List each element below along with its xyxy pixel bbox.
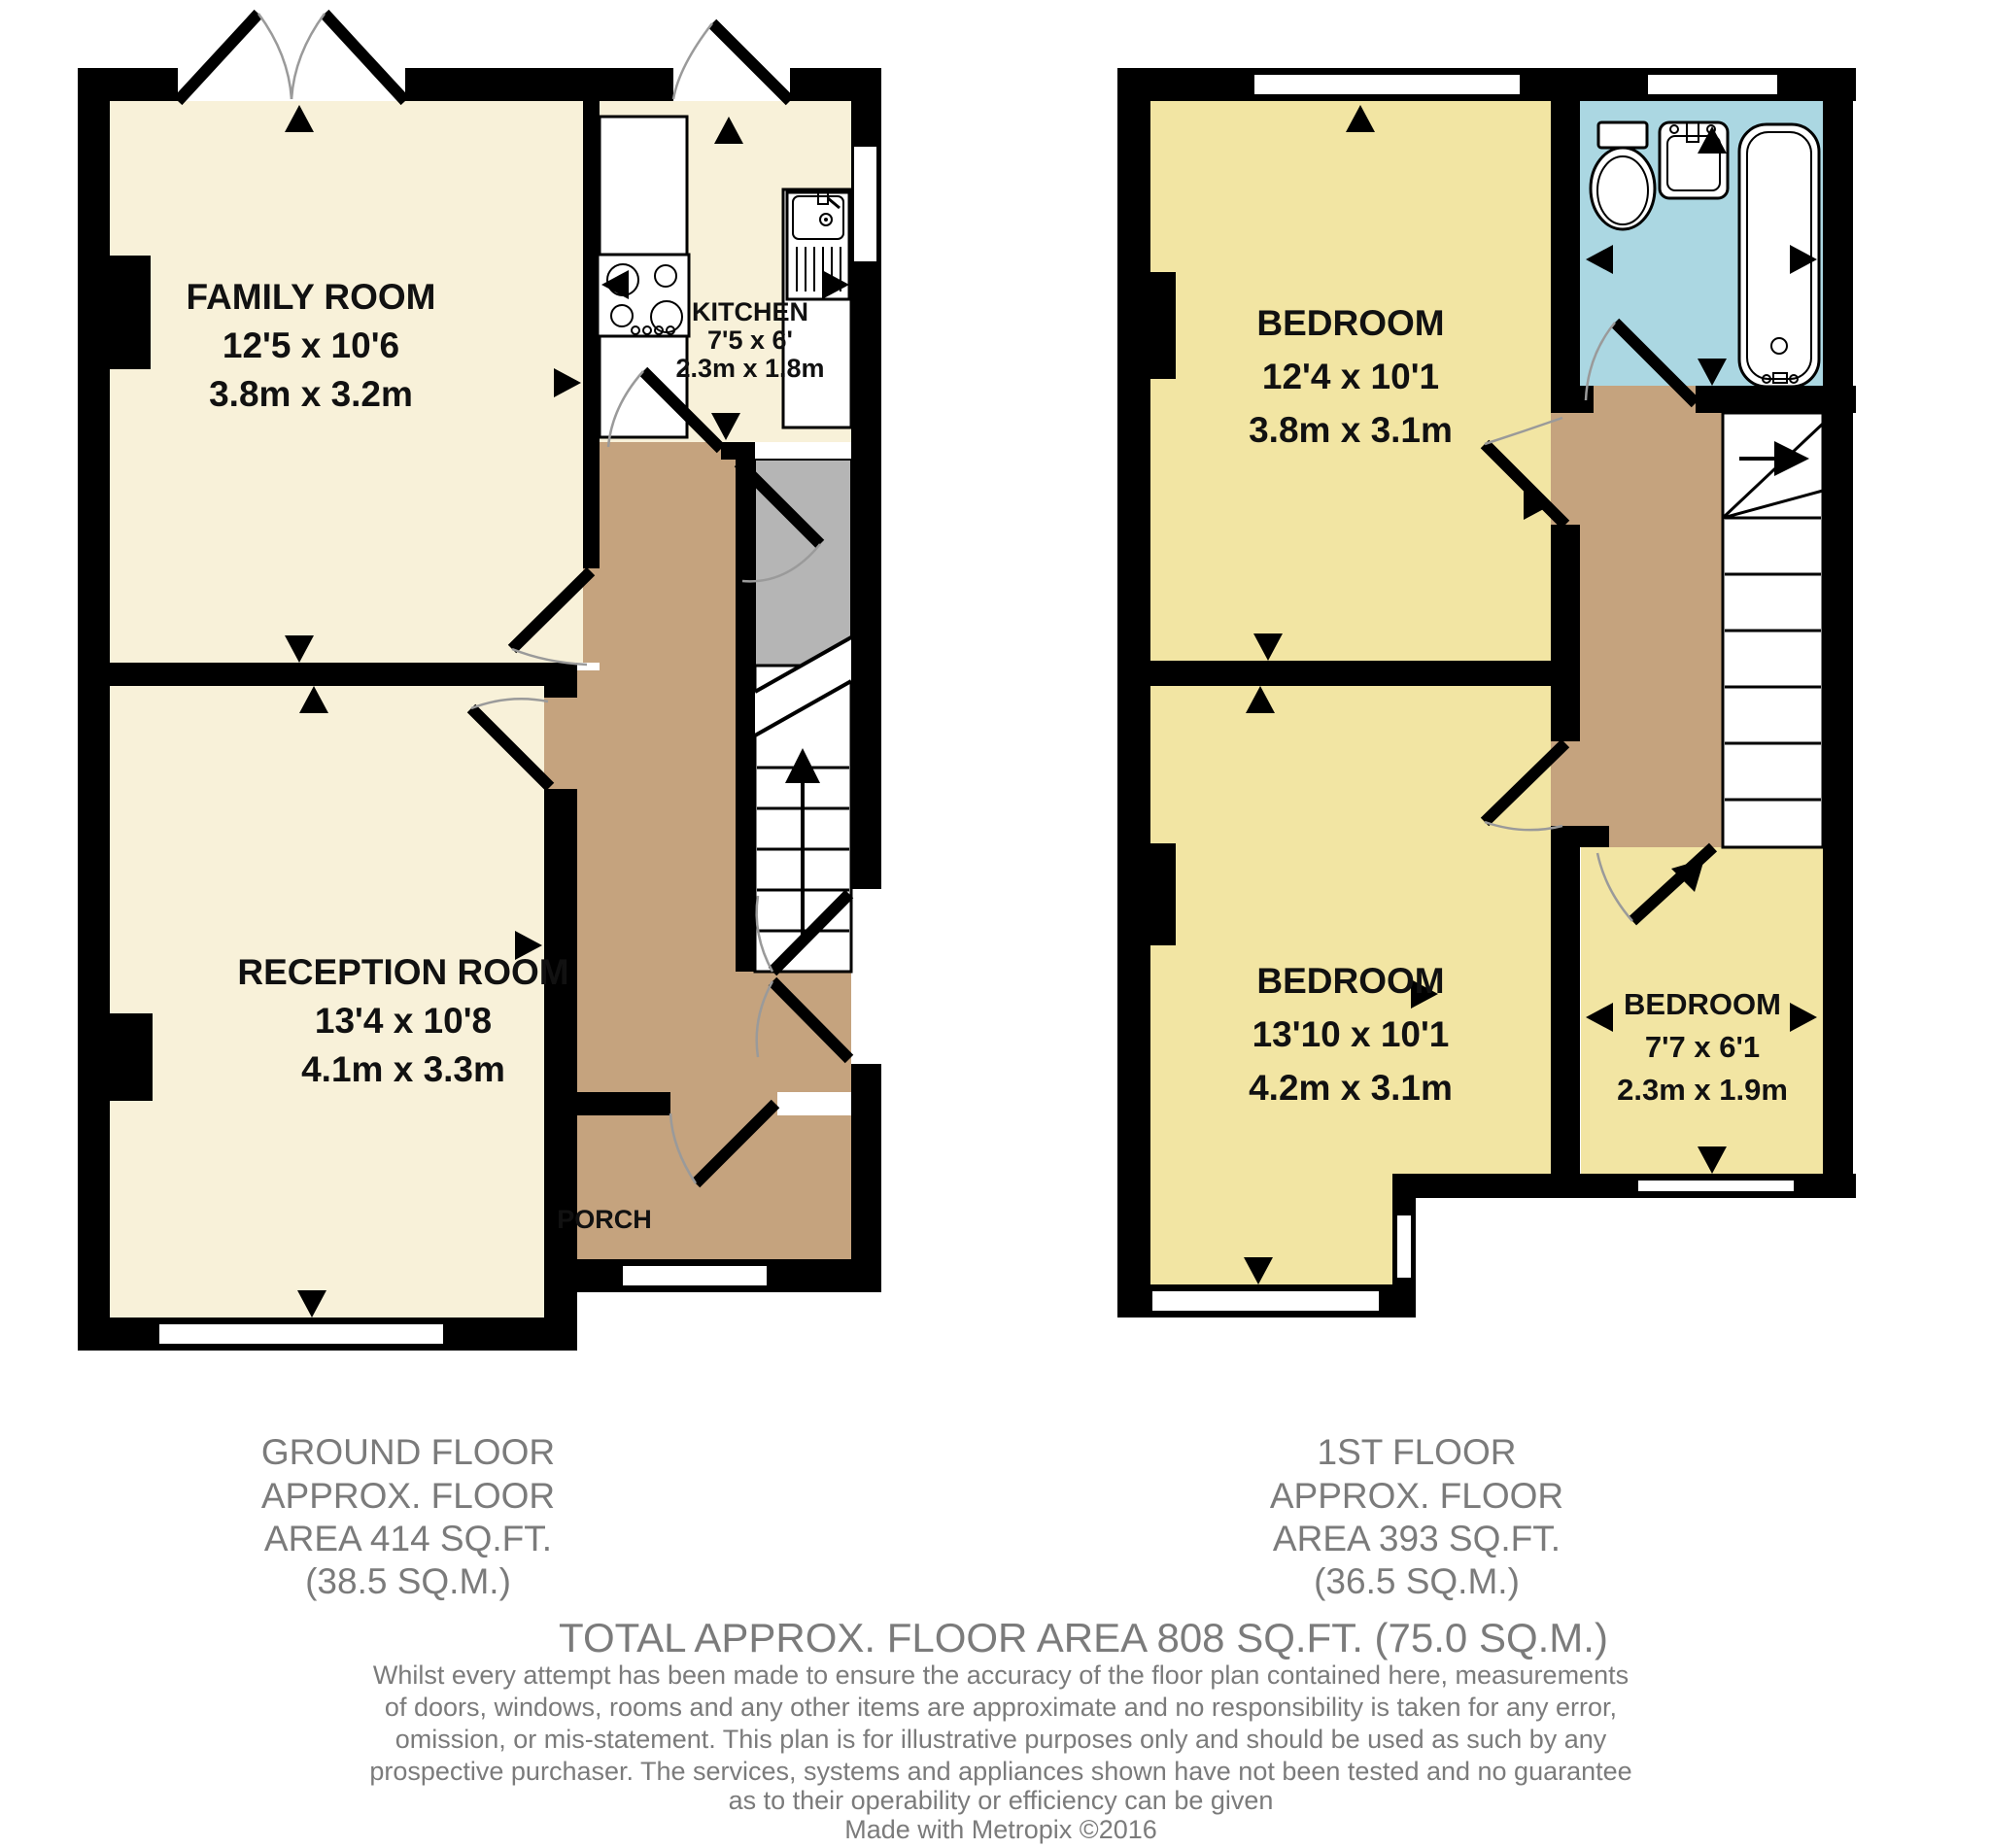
porch-floor xyxy=(577,1115,851,1259)
wall-segment xyxy=(1551,101,1580,413)
porch-name: PORCH xyxy=(557,1205,652,1234)
disclaimer-line: as to their operability or efficiency ca… xyxy=(729,1786,1274,1815)
floorplan-canvas: FAMILY ROOM 12'5 x 10'6 3.8m x 3.2m KITC… xyxy=(0,0,1990,1848)
bedroom-3-metric: 2.3m x 1.9m xyxy=(1617,1073,1788,1107)
chimney-breast xyxy=(110,256,151,369)
hallway-floor xyxy=(577,670,600,1092)
wall-segment xyxy=(78,68,178,101)
ground-floor-plan: FAMILY ROOM 12'5 x 10'6 3.8m x 3.2m KITC… xyxy=(78,14,881,1351)
window-icon xyxy=(1637,1180,1795,1192)
reception-room-metric: 4.1m x 3.3m xyxy=(301,1049,505,1089)
wall-segment xyxy=(736,460,755,972)
door-swing-icon xyxy=(673,23,790,101)
footer: GROUND FLOOR APPROX. FLOOR AREA 414 SQ.F… xyxy=(261,1432,1632,1844)
ground-floor-title-line: AREA 414 SQ.FT. xyxy=(264,1519,552,1558)
hallway-floor xyxy=(600,460,736,1092)
total-floor-area: TOTAL APPROX. FLOOR AREA 808 SQ.FT. (75.… xyxy=(559,1615,1608,1660)
window-icon xyxy=(1151,1290,1380,1312)
bedroom-2-name: BEDROOM xyxy=(1256,961,1444,1001)
toilet-icon xyxy=(1591,122,1655,229)
disclaimer-line: omission, or mis-statement. This plan is… xyxy=(395,1725,1607,1754)
wall-segment xyxy=(1551,826,1609,847)
wall-segment xyxy=(405,68,673,101)
disclaimer-line: prospective purchaser. The services, sys… xyxy=(369,1757,1631,1786)
disclaimer-line: of doors, windows, rooms and any other i… xyxy=(385,1693,1617,1722)
ground-floor-title-line: APPROX. FLOOR xyxy=(261,1476,555,1516)
window-icon xyxy=(1647,74,1778,95)
window-icon xyxy=(853,146,877,262)
disclaimer-line: Whilst every attempt has been made to en… xyxy=(373,1660,1629,1690)
disclaimer: Whilst every attempt has been made to en… xyxy=(369,1660,1631,1844)
wall-segment xyxy=(1117,661,1580,686)
ground-floor-title-line: (38.5 SQ.M.) xyxy=(305,1561,511,1601)
basin-icon xyxy=(1660,122,1728,198)
french-doors-icon xyxy=(178,14,405,101)
bedroom-3-imperial: 7'7 x 6'1 xyxy=(1645,1030,1760,1064)
bedroom-2-metric: 4.2m x 3.1m xyxy=(1249,1068,1453,1108)
ground-floor-title-line: GROUND FLOOR xyxy=(261,1432,555,1472)
bedroom-1-imperial: 12'4 x 10'1 xyxy=(1262,357,1439,396)
bedroom-1-name: BEDROOM xyxy=(1256,303,1444,343)
reception-room-name: RECEPTION ROOM xyxy=(237,952,568,992)
wall-segment xyxy=(1551,525,1580,741)
first-floor-title-line: AREA 393 SQ.FT. xyxy=(1273,1519,1561,1558)
bedroom-2-floor xyxy=(1150,1174,1392,1284)
first-floor-title-line: APPROX. FLOOR xyxy=(1270,1476,1563,1516)
hob-icon xyxy=(598,255,689,336)
reception-room-imperial: 13'4 x 10'8 xyxy=(315,1001,492,1041)
wall-segment xyxy=(1551,826,1580,1174)
first-floor-title-line: (36.5 SQ.M.) xyxy=(1314,1561,1520,1601)
made-with-metropix: Made with Metropix ©2016 xyxy=(844,1815,1157,1844)
chimney-breast xyxy=(110,1013,153,1101)
wall-segment xyxy=(78,68,110,1351)
kitchen-metric: 2.3m x 1.8m xyxy=(675,354,824,383)
hallway-floor xyxy=(736,972,851,1092)
bedroom-3-name: BEDROOM xyxy=(1624,987,1781,1021)
stairs-up-icon xyxy=(755,637,851,972)
kitchen-name: KITCHEN xyxy=(692,297,808,326)
window-icon xyxy=(1396,1215,1412,1279)
ground-floor-title: GROUND FLOOR APPROX. FLOOR AREA 414 SQ.F… xyxy=(261,1432,555,1601)
chimney-breast xyxy=(1150,843,1176,945)
floorplan-page: FAMILY ROOM 12'5 x 10'6 3.8m x 3.2m KITC… xyxy=(0,0,1990,1848)
wall-segment xyxy=(110,663,577,686)
window-icon xyxy=(622,1265,768,1286)
first-floor-plan: BEDROOM 12'4 x 10'1 3.8m x 3.1m BEDROOM … xyxy=(1117,68,1856,1318)
window-icon xyxy=(1253,74,1521,95)
stairs-icon xyxy=(1723,413,1823,847)
wall-segment xyxy=(577,1092,670,1115)
wall-segment xyxy=(1823,68,1853,1198)
kitchen-imperial: 7'5 x 6' xyxy=(707,325,793,355)
landing-floor xyxy=(1580,413,1723,826)
front-door-opening xyxy=(851,889,881,1064)
wall-segment xyxy=(1117,68,1150,1318)
family-room-imperial: 12'5 x 10'6 xyxy=(223,325,399,365)
family-room-name: FAMILY ROOM xyxy=(187,277,436,317)
first-floor-title: 1ST FLOOR APPROX. FLOOR AREA 393 SQ.FT. … xyxy=(1270,1432,1563,1601)
bedroom-1-metric: 3.8m x 3.1m xyxy=(1249,410,1453,450)
family-room-metric: 3.8m x 3.2m xyxy=(209,374,413,414)
bedroom-2-imperial: 13'10 x 10'1 xyxy=(1252,1014,1450,1054)
chimney-breast xyxy=(1150,272,1176,379)
first-floor-title-line: 1ST FLOOR xyxy=(1318,1432,1517,1472)
window-icon xyxy=(158,1323,444,1345)
